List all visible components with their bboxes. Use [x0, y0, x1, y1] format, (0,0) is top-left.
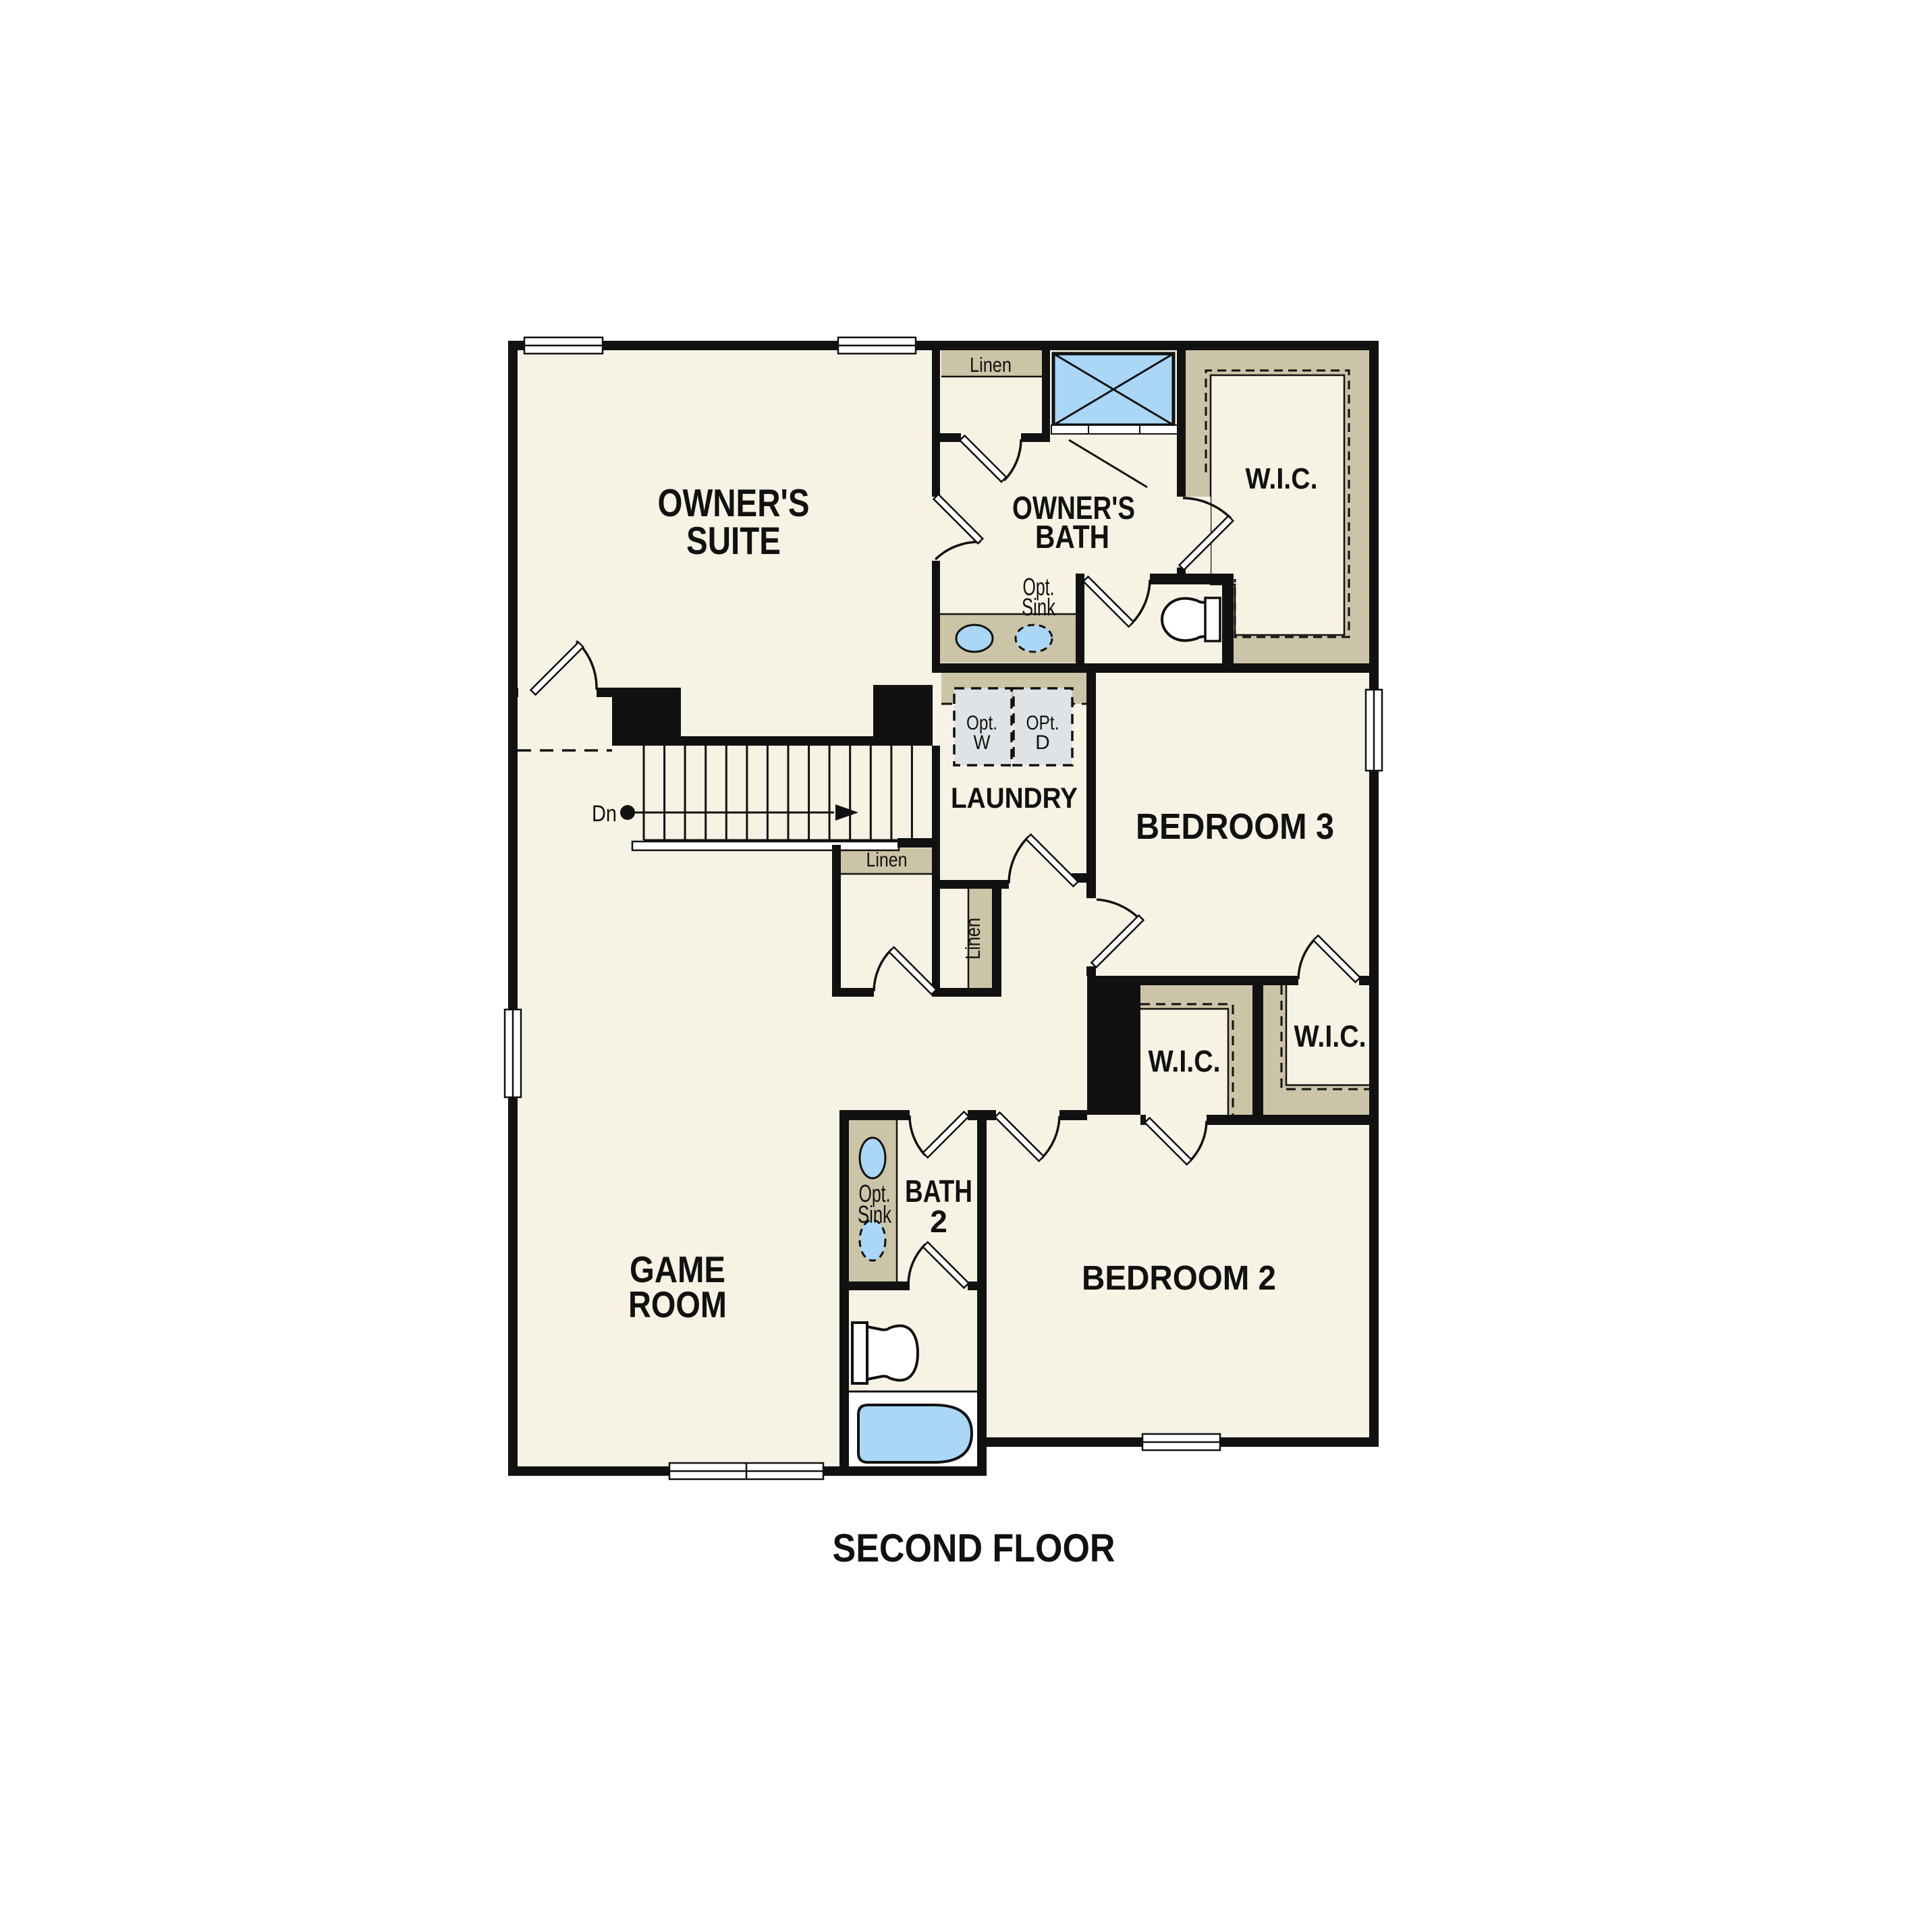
svg-text:BATH: BATH	[1035, 520, 1109, 555]
svg-text:ROOM: ROOM	[628, 1284, 727, 1325]
svg-text:BEDROOM 3: BEDROOM 3	[1136, 806, 1334, 847]
svg-text:LAUNDRY: LAUNDRY	[951, 782, 1078, 815]
svg-text:Linen: Linen	[970, 353, 1012, 377]
svg-text:BEDROOM 2: BEDROOM 2	[1082, 1259, 1276, 1297]
svg-text:Linen: Linen	[866, 849, 908, 871]
svg-text:OWNER'S: OWNER'S	[658, 482, 810, 525]
svg-text:D: D	[1035, 732, 1050, 754]
svg-text:Sink: Sink	[1022, 593, 1056, 621]
svg-text:SECOND FLOOR: SECOND FLOOR	[833, 1526, 1115, 1570]
svg-text:Sink: Sink	[858, 1200, 892, 1228]
svg-text:2: 2	[930, 1204, 947, 1239]
svg-text:W.I.C.: W.I.C.	[1246, 463, 1318, 495]
svg-text:Linen: Linen	[961, 918, 985, 960]
svg-text:Dn: Dn	[592, 801, 617, 827]
svg-text:W.I.C.: W.I.C.	[1149, 1044, 1221, 1078]
svg-text:W.I.C.: W.I.C.	[1294, 1019, 1367, 1053]
svg-text:W: W	[974, 732, 991, 754]
svg-text:SUITE: SUITE	[686, 520, 781, 563]
